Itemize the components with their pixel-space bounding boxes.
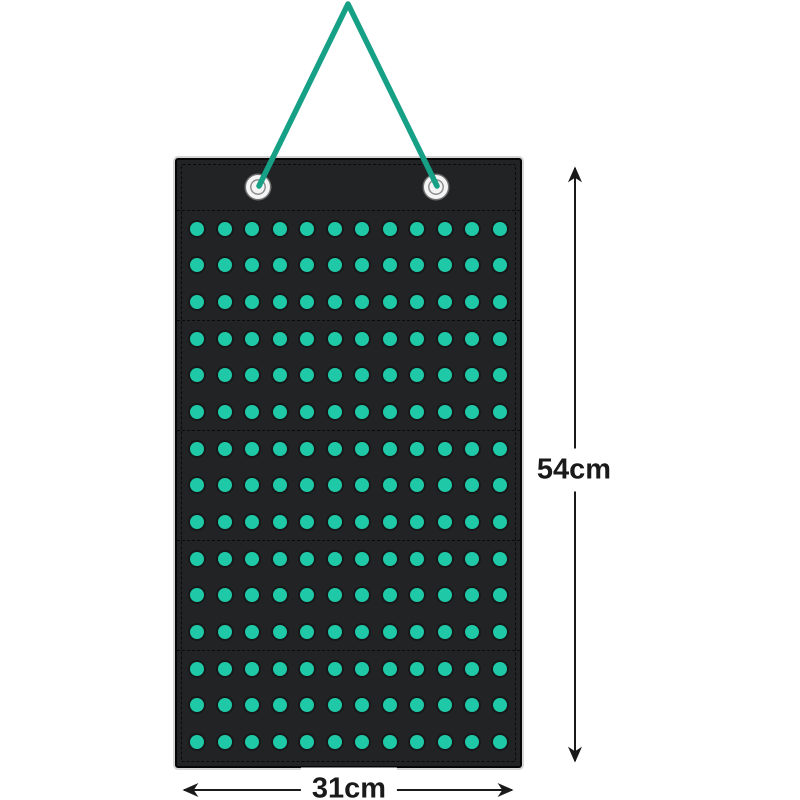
dot-row [190,431,507,467]
felt-dot [328,405,342,419]
pocket-section [177,210,520,320]
felt-dot [438,332,452,346]
felt-dot [218,515,232,529]
felt-dot [355,588,369,602]
felt-dot [438,222,452,236]
felt-dot [273,442,287,456]
felt-dot [383,405,397,419]
felt-dot [328,698,342,712]
pocket-section [177,650,520,760]
felt-dot [410,588,424,602]
dot-row [190,614,507,650]
felt-dot [438,625,452,639]
felt-dot [493,478,507,492]
dot-row [190,504,507,540]
felt-dot [465,698,479,712]
felt-dot [273,698,287,712]
felt-dot [273,222,287,236]
grommet-strip [177,160,520,210]
felt-dot [328,332,342,346]
felt-dot [273,258,287,272]
felt-dot [410,662,424,676]
felt-dot [190,478,204,492]
felt-dot [383,698,397,712]
felt-dot [438,552,452,566]
felt-dot [438,258,452,272]
felt-dot [190,442,204,456]
felt-dot [218,332,232,346]
felt-dot [355,735,369,749]
felt-dot [493,258,507,272]
felt-dot [300,588,314,602]
felt-dot [383,332,397,346]
felt-dot [273,478,287,492]
dot-row [190,211,507,247]
felt-dot [465,258,479,272]
felt-dot [465,625,479,639]
felt-dot [245,405,259,419]
felt-dot [328,662,342,676]
width-dimension-label: 31cm [301,768,397,800]
felt-dot [300,442,314,456]
felt-dot [190,552,204,566]
felt-dot [328,588,342,602]
felt-dot [273,295,287,309]
felt-dot [465,552,479,566]
felt-dot [300,552,314,566]
felt-dot [410,698,424,712]
felt-dot [300,478,314,492]
felt-dot [190,515,204,529]
felt-dot [245,332,259,346]
felt-dot [273,405,287,419]
felt-dot [190,588,204,602]
organizer-panel [175,158,522,768]
felt-dot [493,515,507,529]
pocket-section [177,320,520,430]
felt-dot [328,478,342,492]
felt-dot [245,478,259,492]
felt-dot [218,588,232,602]
felt-dot [328,735,342,749]
felt-dot [410,332,424,346]
felt-dot [190,662,204,676]
felt-dot [383,295,397,309]
felt-dot [383,588,397,602]
felt-dot [190,405,204,419]
felt-dot [245,698,259,712]
felt-dot [328,222,342,236]
felt-dot [410,368,424,382]
felt-dot [218,295,232,309]
felt-dot [245,368,259,382]
felt-dot [438,295,452,309]
felt-dot [355,625,369,639]
felt-dot [190,698,204,712]
felt-dot [300,295,314,309]
felt-dot [190,295,204,309]
felt-dot [438,405,452,419]
felt-dot [245,662,259,676]
felt-dot [218,662,232,676]
grommet-left-icon [246,175,270,199]
felt-dot [273,735,287,749]
felt-dot [410,222,424,236]
felt-dot [493,698,507,712]
felt-dot [355,698,369,712]
felt-dot [190,368,204,382]
felt-dot [300,515,314,529]
felt-dot [273,588,287,602]
felt-dot [328,515,342,529]
felt-dot [383,735,397,749]
felt-dot [438,588,452,602]
felt-dot [410,552,424,566]
felt-dot [328,625,342,639]
felt-dot [383,368,397,382]
felt-dot [438,368,452,382]
felt-dot [218,405,232,419]
felt-dot [190,332,204,346]
felt-dot [383,478,397,492]
felt-dot [438,515,452,529]
felt-dot [245,442,259,456]
felt-dot [190,258,204,272]
felt-dot [355,405,369,419]
dot-row [190,394,507,430]
felt-dot [355,478,369,492]
felt-dot [493,332,507,346]
felt-dot [465,735,479,749]
felt-dot [410,405,424,419]
felt-dot [190,222,204,236]
felt-dot [273,368,287,382]
dot-row [190,284,507,320]
felt-dot [245,222,259,236]
felt-dot [218,698,232,712]
felt-dot [410,442,424,456]
height-dimension-label: 54cm [526,449,622,492]
felt-dot [493,662,507,676]
felt-dot [383,442,397,456]
felt-dot [355,258,369,272]
felt-dot [218,478,232,492]
felt-dot [355,552,369,566]
felt-dot [273,625,287,639]
felt-dot [410,735,424,749]
felt-dot [465,295,479,309]
felt-dot [493,735,507,749]
felt-dot [493,442,507,456]
felt-dot [328,552,342,566]
felt-dot [410,478,424,492]
pocket-section [177,430,520,540]
felt-dot [493,588,507,602]
felt-dot [493,552,507,566]
felt-dot [410,295,424,309]
dot-row [190,577,507,613]
felt-dot [410,515,424,529]
felt-dot [245,552,259,566]
felt-dot [218,552,232,566]
felt-dot [273,552,287,566]
felt-dot [218,368,232,382]
product-dimension-diagram: 54cm 31cm [0,0,800,800]
felt-dot [355,368,369,382]
felt-dot [383,222,397,236]
felt-dot [355,222,369,236]
felt-dot [300,258,314,272]
felt-dot [218,625,232,639]
felt-dot [300,698,314,712]
felt-dot [465,332,479,346]
felt-dot [465,515,479,529]
dot-row [190,357,507,393]
felt-dot [355,295,369,309]
felt-dot [245,515,259,529]
felt-dot [438,442,452,456]
felt-dot [328,368,342,382]
felt-dot [383,258,397,272]
felt-dot [438,735,452,749]
felt-dot [245,295,259,309]
felt-dot [383,515,397,529]
felt-dot [465,588,479,602]
felt-dot [493,222,507,236]
felt-dot [300,405,314,419]
felt-dot [465,405,479,419]
felt-dot [493,405,507,419]
felt-dot [218,258,232,272]
grommet-right-icon [424,175,448,199]
dot-row [190,247,507,283]
felt-dot [465,662,479,676]
felt-dot [493,295,507,309]
felt-dot [493,368,507,382]
dot-row [190,321,507,357]
felt-dot [410,258,424,272]
felt-dot [245,625,259,639]
felt-dot [438,662,452,676]
dot-row [190,651,507,687]
felt-dot [328,295,342,309]
felt-dot [245,258,259,272]
dot-row [190,541,507,577]
felt-dot [300,222,314,236]
felt-dot [273,515,287,529]
felt-dot [273,662,287,676]
felt-dot [465,478,479,492]
felt-dot [383,662,397,676]
felt-dot [300,735,314,749]
felt-dot [355,662,369,676]
felt-dot [218,222,232,236]
dot-row [190,687,507,723]
dot-row [190,724,507,760]
felt-dot [245,735,259,749]
felt-dot [218,735,232,749]
felt-dot [465,442,479,456]
felt-dot [300,625,314,639]
felt-dot [328,442,342,456]
pocket-section [177,540,520,650]
dot-row [190,467,507,503]
felt-dot [438,698,452,712]
felt-dot [273,332,287,346]
felt-dot [465,368,479,382]
felt-dot [245,588,259,602]
pocket-sections [177,210,520,766]
felt-dot [465,222,479,236]
felt-dot [410,625,424,639]
felt-dot [190,625,204,639]
felt-dot [383,552,397,566]
felt-dot [355,442,369,456]
felt-dot [300,662,314,676]
felt-dot [218,442,232,456]
felt-dot [355,332,369,346]
felt-dot [493,625,507,639]
felt-dot [300,332,314,346]
felt-dot [438,478,452,492]
felt-dot [355,515,369,529]
felt-dot [383,625,397,639]
felt-dot [190,735,204,749]
felt-dot [328,258,342,272]
felt-dot [300,368,314,382]
